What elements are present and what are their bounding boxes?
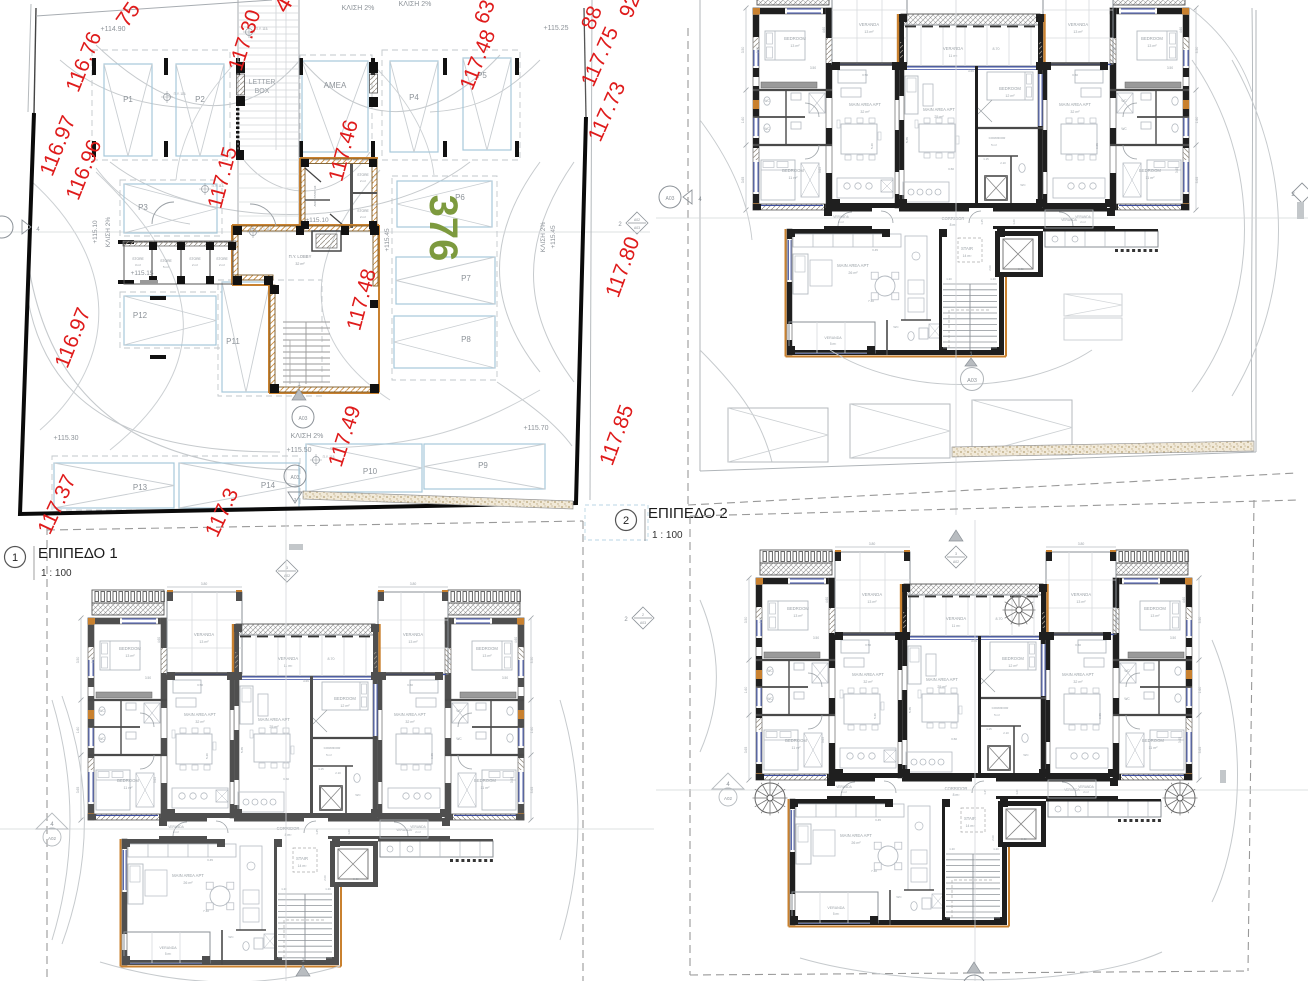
- svg-text:2: 2: [623, 515, 629, 527]
- svg-text:BOX: BOX: [255, 88, 270, 95]
- svg-text:STORE: STORE: [357, 173, 369, 177]
- svg-text:+115.10: +115.10: [92, 220, 99, 244]
- svg-text:ΕΠΙΠΕΔΟ 2: ΕΠΙΠΕΔΟ 2: [648, 505, 728, 522]
- svg-text:+115.25: +115.25: [544, 25, 569, 32]
- svg-text:A02: A02: [634, 218, 640, 222]
- svg-text:2 m²: 2 m²: [360, 179, 366, 183]
- svg-text:ΚΛΙΣΗ 2%: ΚΛΙΣΗ 2%: [399, 1, 432, 8]
- svg-text:376: 376: [421, 195, 465, 262]
- svg-text:1 : 100: 1 : 100: [41, 568, 72, 579]
- svg-text:Π.Υ. LOBBY: Π.Υ. LOBBY: [289, 254, 312, 259]
- svg-text:Π.Υ. 115.: Π.Υ. 115.: [174, 92, 187, 96]
- svg-text:P9: P9: [478, 461, 488, 470]
- svg-text:+114.90: +114.90: [101, 26, 126, 33]
- svg-text:A03: A03: [640, 621, 646, 625]
- svg-text:STORE: STORE: [216, 257, 228, 261]
- svg-text:P2: P2: [195, 95, 205, 104]
- svg-text:AMEA: AMEA: [324, 81, 347, 90]
- svg-text:P10: P10: [363, 467, 378, 476]
- svg-text:A02: A02: [953, 560, 959, 564]
- svg-text:2 m²: 2 m²: [360, 215, 366, 219]
- svg-text:+115.50: +115.50: [287, 447, 312, 454]
- svg-text:ΑΝΚ ΣΥΛΛΟΓΗΣ: ΑΝΚ ΣΥΛΛΟΓΗΣ: [313, 185, 317, 206]
- svg-text:P4: P4: [409, 93, 419, 102]
- svg-text:P14: P14: [261, 481, 276, 490]
- svg-text:1: 1: [12, 552, 18, 564]
- svg-text:1 : 100: 1 : 100: [652, 530, 683, 541]
- svg-text:2 m²: 2 m²: [192, 263, 198, 267]
- svg-text:32 m²: 32 m²: [295, 262, 305, 266]
- svg-text:ΚΛΙΣΗ 2%: ΚΛΙΣΗ 2%: [540, 222, 547, 253]
- svg-text:A03: A03: [967, 378, 977, 384]
- svg-text:STORE: STORE: [132, 257, 144, 261]
- svg-text:+115.45: +115.45: [550, 225, 557, 249]
- svg-text:P8: P8: [461, 335, 471, 344]
- svg-text:A02: A02: [284, 574, 290, 578]
- svg-text:P11: P11: [226, 337, 240, 346]
- svg-text:+115.30: +115.30: [54, 435, 79, 442]
- svg-text:A03: A03: [299, 416, 308, 422]
- svg-text:3: 3: [955, 552, 957, 556]
- svg-text:+115.15: +115.15: [131, 270, 154, 277]
- svg-text:STORE: STORE: [189, 257, 201, 261]
- svg-text:STORE: STORE: [357, 209, 369, 213]
- svg-text:5 m²: 5 m²: [163, 265, 169, 269]
- svg-text:ΚΛΙΣΗ 2%: ΚΛΙΣΗ 2%: [291, 433, 324, 440]
- svg-text:A02: A02: [48, 836, 57, 841]
- svg-text:P13: P13: [133, 483, 148, 492]
- svg-text:ΕΠΙΠΕΔΟ 1: ΕΠΙΠΕΔΟ 1: [38, 545, 118, 562]
- svg-text:A03: A03: [666, 196, 675, 202]
- svg-text:P1: P1: [123, 95, 133, 104]
- svg-text:Π.Υ. 115.: Π.Υ. 115.: [260, 227, 273, 231]
- svg-text:P7: P7: [461, 274, 471, 283]
- svg-text:2: 2: [642, 613, 644, 617]
- svg-text:P12: P12: [133, 311, 148, 320]
- svg-text:P3: P3: [138, 203, 148, 212]
- svg-text:ΚΛΙΣΗ 2%: ΚΛΙΣΗ 2%: [342, 5, 375, 12]
- svg-text:ΚΛΙΣΗ 2%: ΚΛΙΣΗ 2%: [105, 217, 112, 248]
- svg-text:STORE: STORE: [160, 259, 172, 263]
- svg-text:+115.70: +115.70: [524, 425, 549, 432]
- svg-text:LETTER: LETTER: [249, 79, 276, 86]
- svg-text:A03: A03: [291, 475, 300, 481]
- svg-text:3 m²: 3 m²: [135, 263, 141, 267]
- svg-text:+115.45: +115.45: [384, 228, 391, 252]
- svg-text:2 m²: 2 m²: [219, 263, 225, 267]
- svg-text:A02: A02: [724, 796, 733, 801]
- svg-text:A03: A03: [634, 226, 640, 230]
